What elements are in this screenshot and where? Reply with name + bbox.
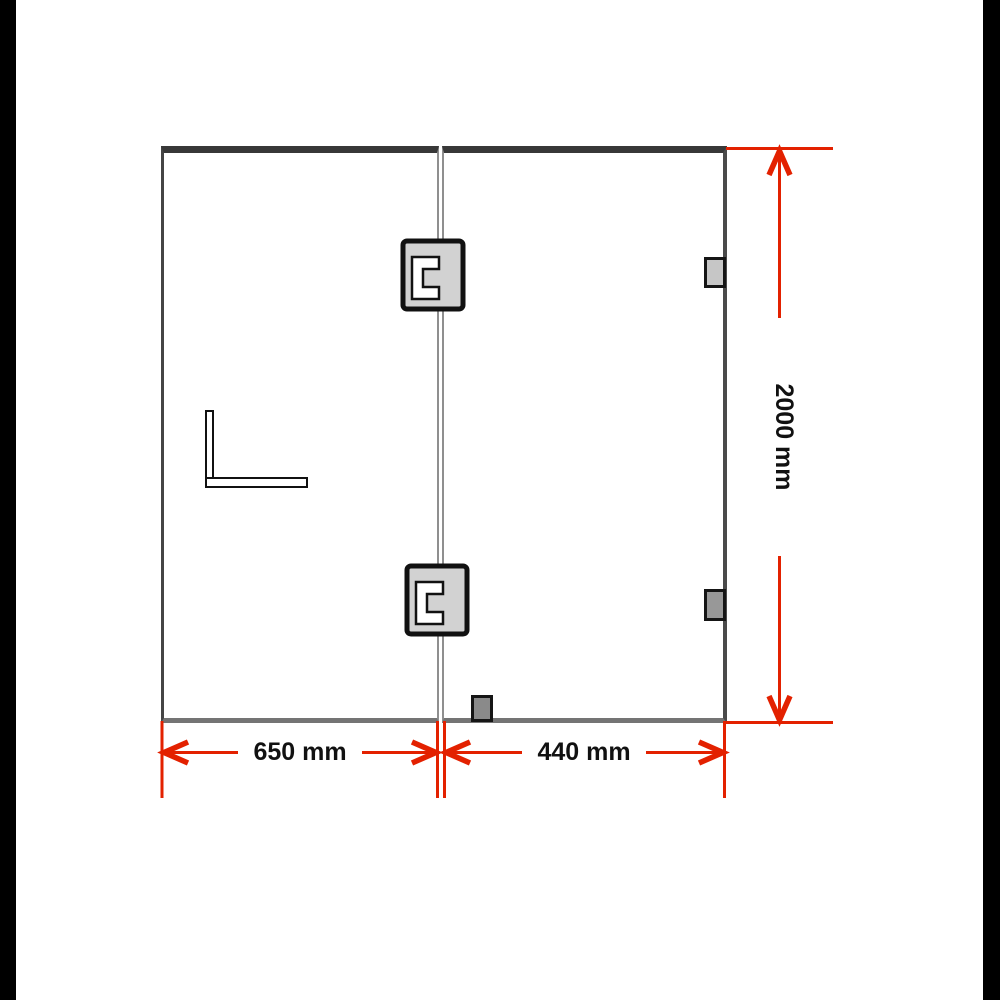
left-black-border xyxy=(0,0,16,1000)
l-handle-vertical-bar xyxy=(205,410,214,487)
wall-bracket-bottom-icon xyxy=(704,589,726,621)
glass-hinge-top-icon xyxy=(400,238,466,312)
shower-screen-diagram: 650 mm 440 mm 2000 mm xyxy=(0,0,1000,1000)
dimension-label-door-width: 440 mm xyxy=(522,738,646,766)
dimension-lines xyxy=(0,0,1000,1000)
wall-bracket-top-icon xyxy=(704,257,726,288)
glass-hinge-bottom-icon xyxy=(404,563,470,637)
l-handle-horizontal-bar xyxy=(205,477,308,488)
dimension-label-height: 2000 mm xyxy=(769,372,799,502)
arrowheads xyxy=(164,151,790,763)
floor-bracket-icon xyxy=(471,695,493,722)
right-black-border xyxy=(983,0,1000,1000)
dimension-label-left-width: 650 mm xyxy=(238,738,362,766)
